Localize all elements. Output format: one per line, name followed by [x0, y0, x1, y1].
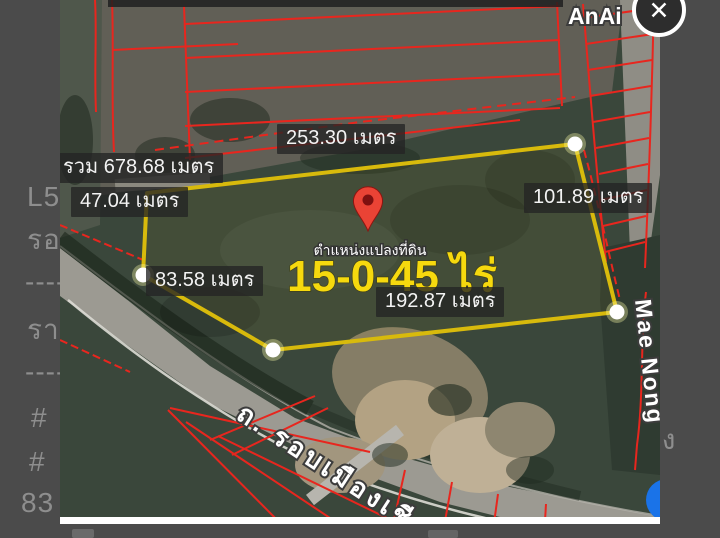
bg-text-fragment: 83 [21, 489, 54, 517]
measure-right: 101.89 เมตร [524, 183, 652, 213]
page: { "overlay": { "close_label": "✕" }, "ba… [0, 0, 720, 538]
measure-left-lower: 83.58 เมตร [146, 266, 263, 296]
bg-text-fragment: L5 [27, 183, 60, 211]
satellite-map: ถ. รอบเมืองเชียงราย Mae Nong AnAi ตำแหน่… [60, 0, 660, 517]
measure-top: 253.30 เมตร [277, 124, 405, 154]
clipped-label-bar [108, 0, 563, 7]
land-plot-image[interactable]: ถ. รอบเมืองเชียงราย Mae Nong AnAi ตำแหน่… [60, 0, 660, 524]
measure-left-upper: 47.04 เมตร [71, 187, 188, 217]
bg-text-fragment: รา [27, 316, 60, 344]
measure-total: รวม 678.68 เมตร [60, 153, 223, 183]
clipped-text-sliver [428, 530, 458, 538]
place-name-label: AnAi [568, 3, 622, 29]
bg-text-fragment: # [29, 448, 46, 476]
bg-text-fragment: รอ [27, 226, 61, 254]
measure-bottom: 192.87 เมตร [376, 287, 504, 317]
close-icon: ✕ [649, 0, 670, 24]
bg-text-fragment: # [31, 404, 48, 432]
clipped-text-sliver [72, 529, 94, 538]
